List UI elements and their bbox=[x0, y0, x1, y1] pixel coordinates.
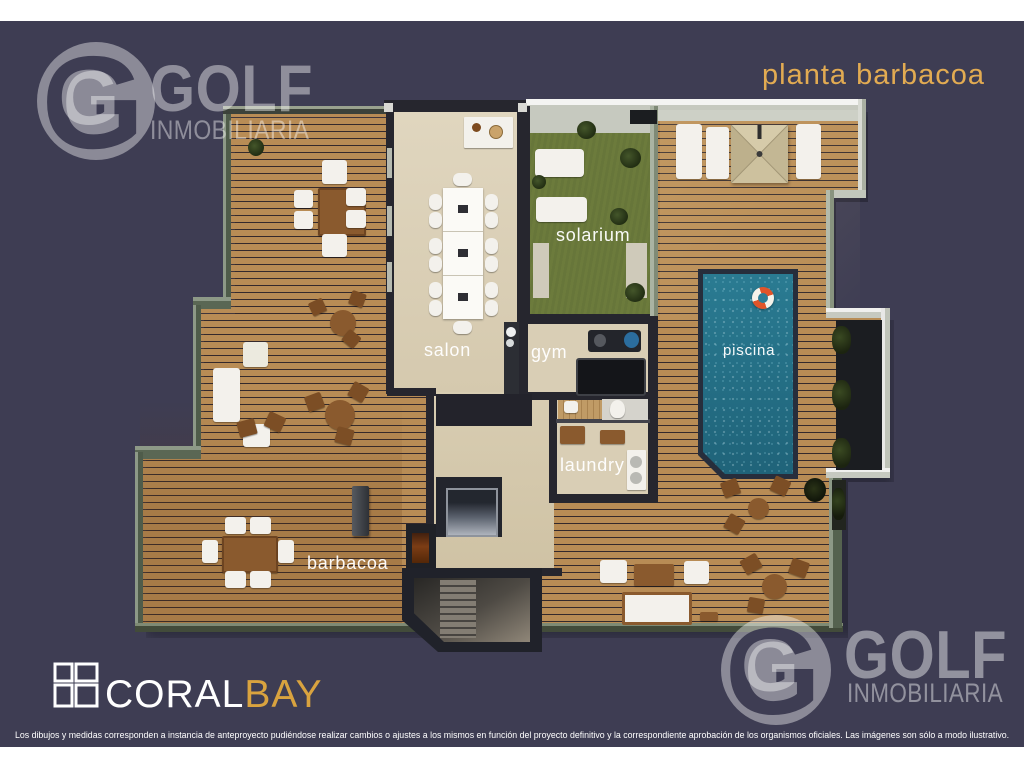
svg-text:G: G bbox=[59, 53, 120, 141]
svg-text:INMOBILIARIA: INMOBILIARIA bbox=[847, 679, 1003, 708]
svg-text:G: G bbox=[741, 624, 799, 707]
svg-text:CORALBAY: CORALBAY bbox=[105, 673, 323, 715]
svg-text:INMOBILIARIA: INMOBILIARIA bbox=[150, 115, 309, 145]
